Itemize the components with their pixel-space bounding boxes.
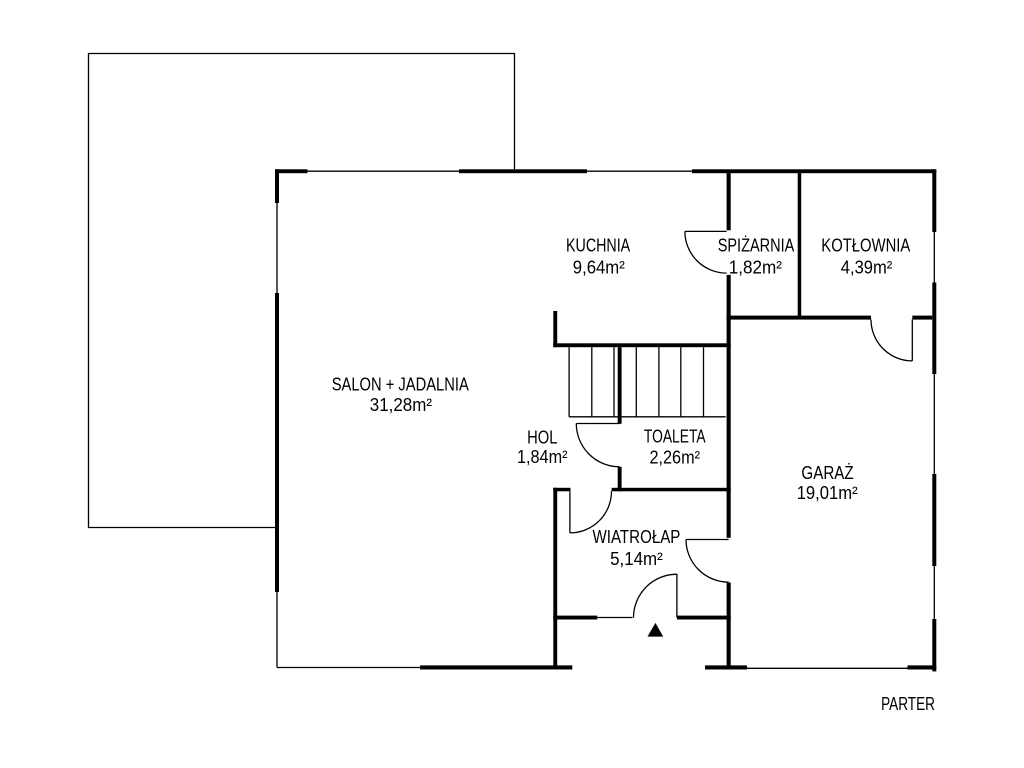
svg-text:19,01m²: 19,01m² xyxy=(797,483,858,503)
svg-text:SPIŻARNIA: SPIŻARNIA xyxy=(718,236,795,256)
svg-text:5,14m²: 5,14m² xyxy=(610,549,663,569)
svg-text:1,82m²: 1,82m² xyxy=(729,258,782,278)
svg-text:KOTŁOWNIA: KOTŁOWNIA xyxy=(821,236,910,256)
svg-text:2,26m²: 2,26m² xyxy=(650,448,701,468)
svg-text:1,84m²: 1,84m² xyxy=(517,447,568,467)
svg-text:SALON + JADALNIA: SALON + JADALNIA xyxy=(332,375,469,395)
svg-text:PARTER: PARTER xyxy=(881,694,935,714)
svg-text:HOL: HOL xyxy=(527,428,557,448)
svg-text:4,39m²: 4,39m² xyxy=(841,258,893,278)
svg-text:KUCHNIA: KUCHNIA xyxy=(566,236,630,256)
svg-text:31,28m²: 31,28m² xyxy=(370,395,432,415)
svg-text:WIATROŁAP: WIATROŁAP xyxy=(593,527,681,547)
svg-text:TOALETA: TOALETA xyxy=(644,427,706,447)
svg-text:9,64m²: 9,64m² xyxy=(573,258,625,278)
svg-text:GARAŻ: GARAŻ xyxy=(801,463,853,483)
